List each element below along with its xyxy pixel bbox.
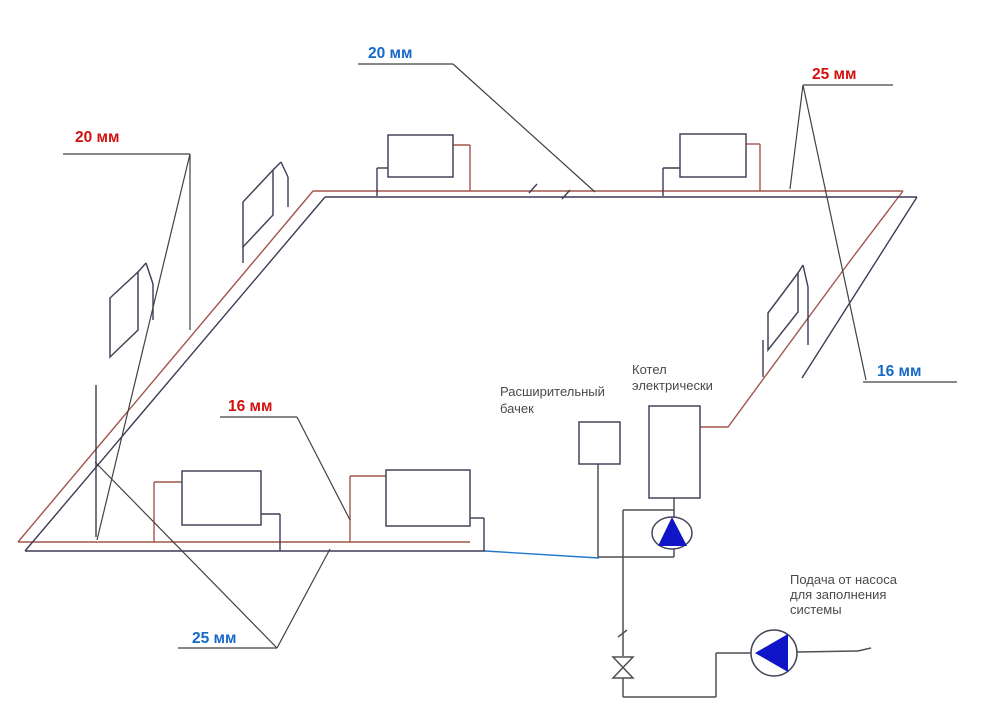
radiator-left-wall-1 xyxy=(243,170,273,247)
dimension-leader-lines xyxy=(63,64,957,648)
expansion-tank-label-line1: Расширительный xyxy=(500,384,605,399)
pump-rotors xyxy=(658,517,788,672)
dim-label-25mm-bottom: 25 мм xyxy=(192,630,236,647)
boiler-label-line2: электрически xyxy=(632,378,713,393)
expansion-tank-label-line2: бачек xyxy=(500,401,534,416)
dim-label-20mm-top-left: 20 мм xyxy=(75,129,119,146)
return-pipe-blue xyxy=(485,551,599,558)
dim-label-16mm-right: 16 мм xyxy=(877,363,921,380)
equipment-outlines xyxy=(110,134,798,676)
heating-scheme-canvas: 20 мм 20 мм 25 мм 16 мм 16 мм 25 мм Расш… xyxy=(0,0,1000,726)
fill-pump-note-line2: для заполнения xyxy=(790,587,886,602)
radiator-bottom-1 xyxy=(182,471,261,525)
boiler-label-line1: Котел xyxy=(632,362,667,377)
radiator-top-2 xyxy=(680,134,746,177)
return-pipe-dark xyxy=(25,162,917,551)
fill-pump-note-line1: Подача от насоса xyxy=(790,572,898,587)
dim-label-25mm-top-right: 25 мм xyxy=(812,66,856,83)
fill-pump-note-line3: системы xyxy=(790,602,842,617)
expansion-tank xyxy=(579,422,620,464)
radiator-bottom-2 xyxy=(386,470,470,526)
radiator-left-wall-2 xyxy=(110,272,138,357)
radiator-top-1 xyxy=(388,135,453,177)
dim-label-20mm-top-center: 20 мм xyxy=(368,45,412,62)
electric-boiler xyxy=(649,406,700,498)
dim-label-16mm-middle: 16 мм xyxy=(228,398,272,415)
fill-valve-icon xyxy=(613,657,633,678)
piping-diagram: 20 мм 20 мм 25 мм 16 мм 16 мм 25 мм Расш… xyxy=(0,0,1000,726)
